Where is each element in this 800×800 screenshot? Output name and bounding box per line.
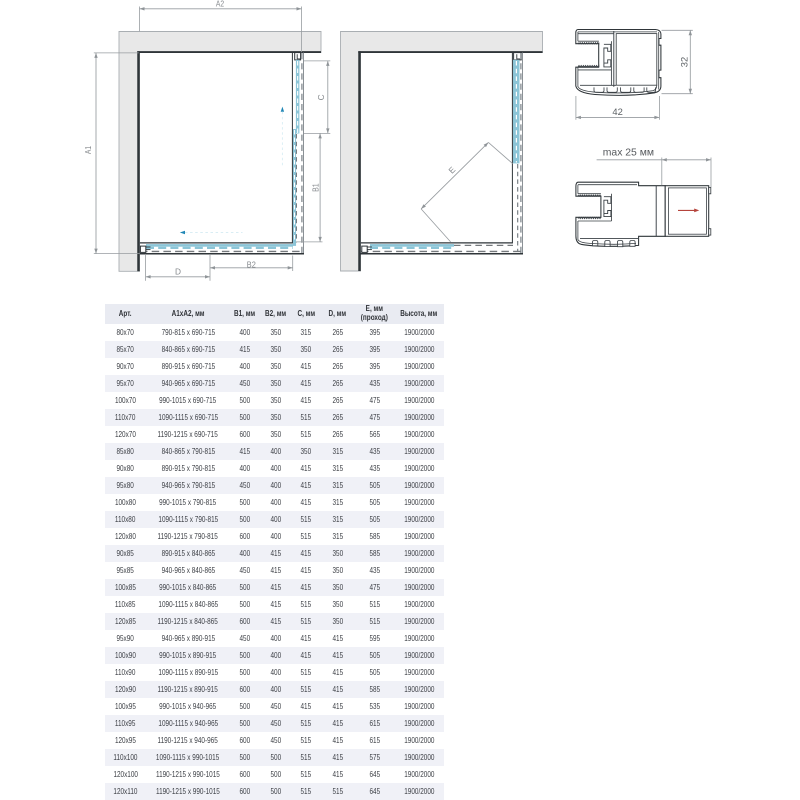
svg-text:B2: B2	[247, 259, 256, 269]
svg-text:A1: A1	[83, 146, 93, 155]
svg-text:max 25 мм: max 25 мм	[603, 147, 654, 158]
svg-text:D: D	[175, 267, 181, 277]
svg-text:32: 32	[678, 57, 689, 67]
svg-text:42: 42	[612, 106, 622, 117]
svg-text:A2: A2	[216, 0, 225, 9]
svg-text:C: C	[316, 94, 326, 100]
svg-text:B1: B1	[311, 183, 321, 192]
